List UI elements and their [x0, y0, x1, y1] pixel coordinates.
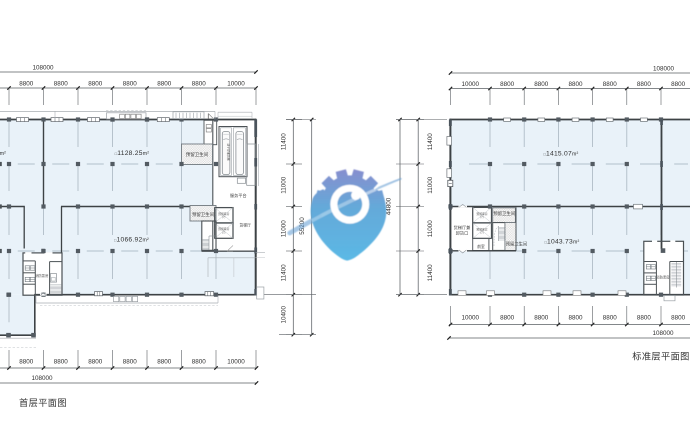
- svg-text:8800: 8800: [192, 359, 207, 366]
- svg-text:预留库房: 预留库房: [476, 227, 487, 231]
- svg-text:m²: m²: [0, 151, 6, 157]
- svg-text:首层平面图: 首层平面图: [19, 397, 67, 408]
- svg-text:8800: 8800: [157, 80, 172, 87]
- svg-text:11000: 11000: [281, 220, 288, 238]
- svg-text:8800: 8800: [88, 80, 103, 87]
- svg-text:8800: 8800: [19, 359, 34, 366]
- svg-text:11000: 11000: [281, 176, 288, 194]
- svg-text:预留卫生间: 预留卫生间: [186, 151, 209, 158]
- svg-text:8800: 8800: [123, 359, 138, 366]
- svg-text:8800: 8800: [534, 315, 549, 322]
- svg-text:□1066.92m²: □1066.92m²: [114, 236, 149, 243]
- svg-text:10400: 10400: [281, 305, 288, 323]
- svg-text:预留库房: 预留库房: [476, 212, 487, 216]
- svg-text:108000: 108000: [31, 375, 53, 382]
- svg-text:□1043.73m²: □1043.73m²: [544, 238, 579, 245]
- svg-text:10000: 10000: [461, 315, 479, 322]
- svg-text:8800: 8800: [157, 359, 172, 366]
- svg-text:8800: 8800: [637, 315, 652, 322]
- svg-text:8800: 8800: [88, 359, 103, 366]
- svg-text:8800: 8800: [637, 81, 652, 88]
- svg-text:预留库房: 预留库房: [218, 227, 229, 231]
- svg-text:44800: 44800: [386, 197, 393, 215]
- svg-text:8800: 8800: [603, 315, 618, 322]
- svg-text:11400: 11400: [281, 133, 288, 151]
- svg-text:(7): (7): [222, 215, 225, 219]
- svg-text:标准层平面图: 标准层平面图: [632, 351, 690, 362]
- svg-text:8800: 8800: [568, 81, 583, 88]
- svg-text:8800: 8800: [500, 315, 515, 322]
- svg-text:预留卫生间: 预留卫生间: [493, 210, 515, 217]
- svg-text:8800: 8800: [568, 315, 583, 322]
- svg-text:(7): (7): [222, 231, 225, 235]
- svg-text:货梯厅: 货梯厅: [240, 222, 252, 227]
- svg-text:8800: 8800: [603, 81, 618, 88]
- svg-text:11000: 11000: [427, 220, 434, 238]
- svg-text:108000: 108000: [32, 65, 54, 72]
- svg-text:8800: 8800: [671, 81, 686, 88]
- svg-text:(7): (7): [480, 215, 483, 219]
- svg-text:8800: 8800: [54, 359, 69, 366]
- svg-text:□1415.07m²: □1415.07m²: [543, 151, 578, 158]
- svg-text:服务平台: 服务平台: [230, 192, 247, 199]
- svg-text:消防泵房: 消防泵房: [35, 273, 49, 278]
- svg-text:消防泵房: 消防泵房: [656, 274, 670, 279]
- svg-text:11000: 11000: [427, 176, 434, 194]
- svg-text:108000: 108000: [652, 330, 674, 337]
- svg-text:卸货口: 卸货口: [456, 230, 469, 237]
- svg-text:11400: 11400: [281, 264, 288, 282]
- svg-text:8800: 8800: [123, 80, 138, 87]
- svg-text:预留库房: 预留库房: [218, 212, 229, 216]
- svg-text:11400: 11400: [427, 133, 434, 151]
- svg-text:预留卫生间: 预留卫生间: [192, 211, 214, 218]
- svg-text:双子轿厢货梯: 双子轿厢货梯: [227, 143, 232, 160]
- svg-text:8800: 8800: [19, 80, 34, 87]
- svg-text:8800: 8800: [54, 80, 69, 87]
- svg-text:11400: 11400: [427, 264, 434, 282]
- svg-text:8800: 8800: [534, 81, 549, 88]
- svg-text:8800: 8800: [500, 81, 515, 88]
- svg-text:(7): (7): [480, 231, 483, 235]
- svg-text:前室: 前室: [477, 244, 485, 249]
- svg-text:10000: 10000: [227, 80, 245, 87]
- svg-text:□1128.25m²: □1128.25m²: [115, 150, 150, 157]
- svg-text:10000: 10000: [461, 81, 479, 88]
- svg-text:8800: 8800: [671, 315, 686, 322]
- svg-text:108000: 108000: [653, 65, 675, 72]
- svg-text:8800: 8800: [192, 80, 207, 87]
- svg-text:10000: 10000: [227, 359, 245, 366]
